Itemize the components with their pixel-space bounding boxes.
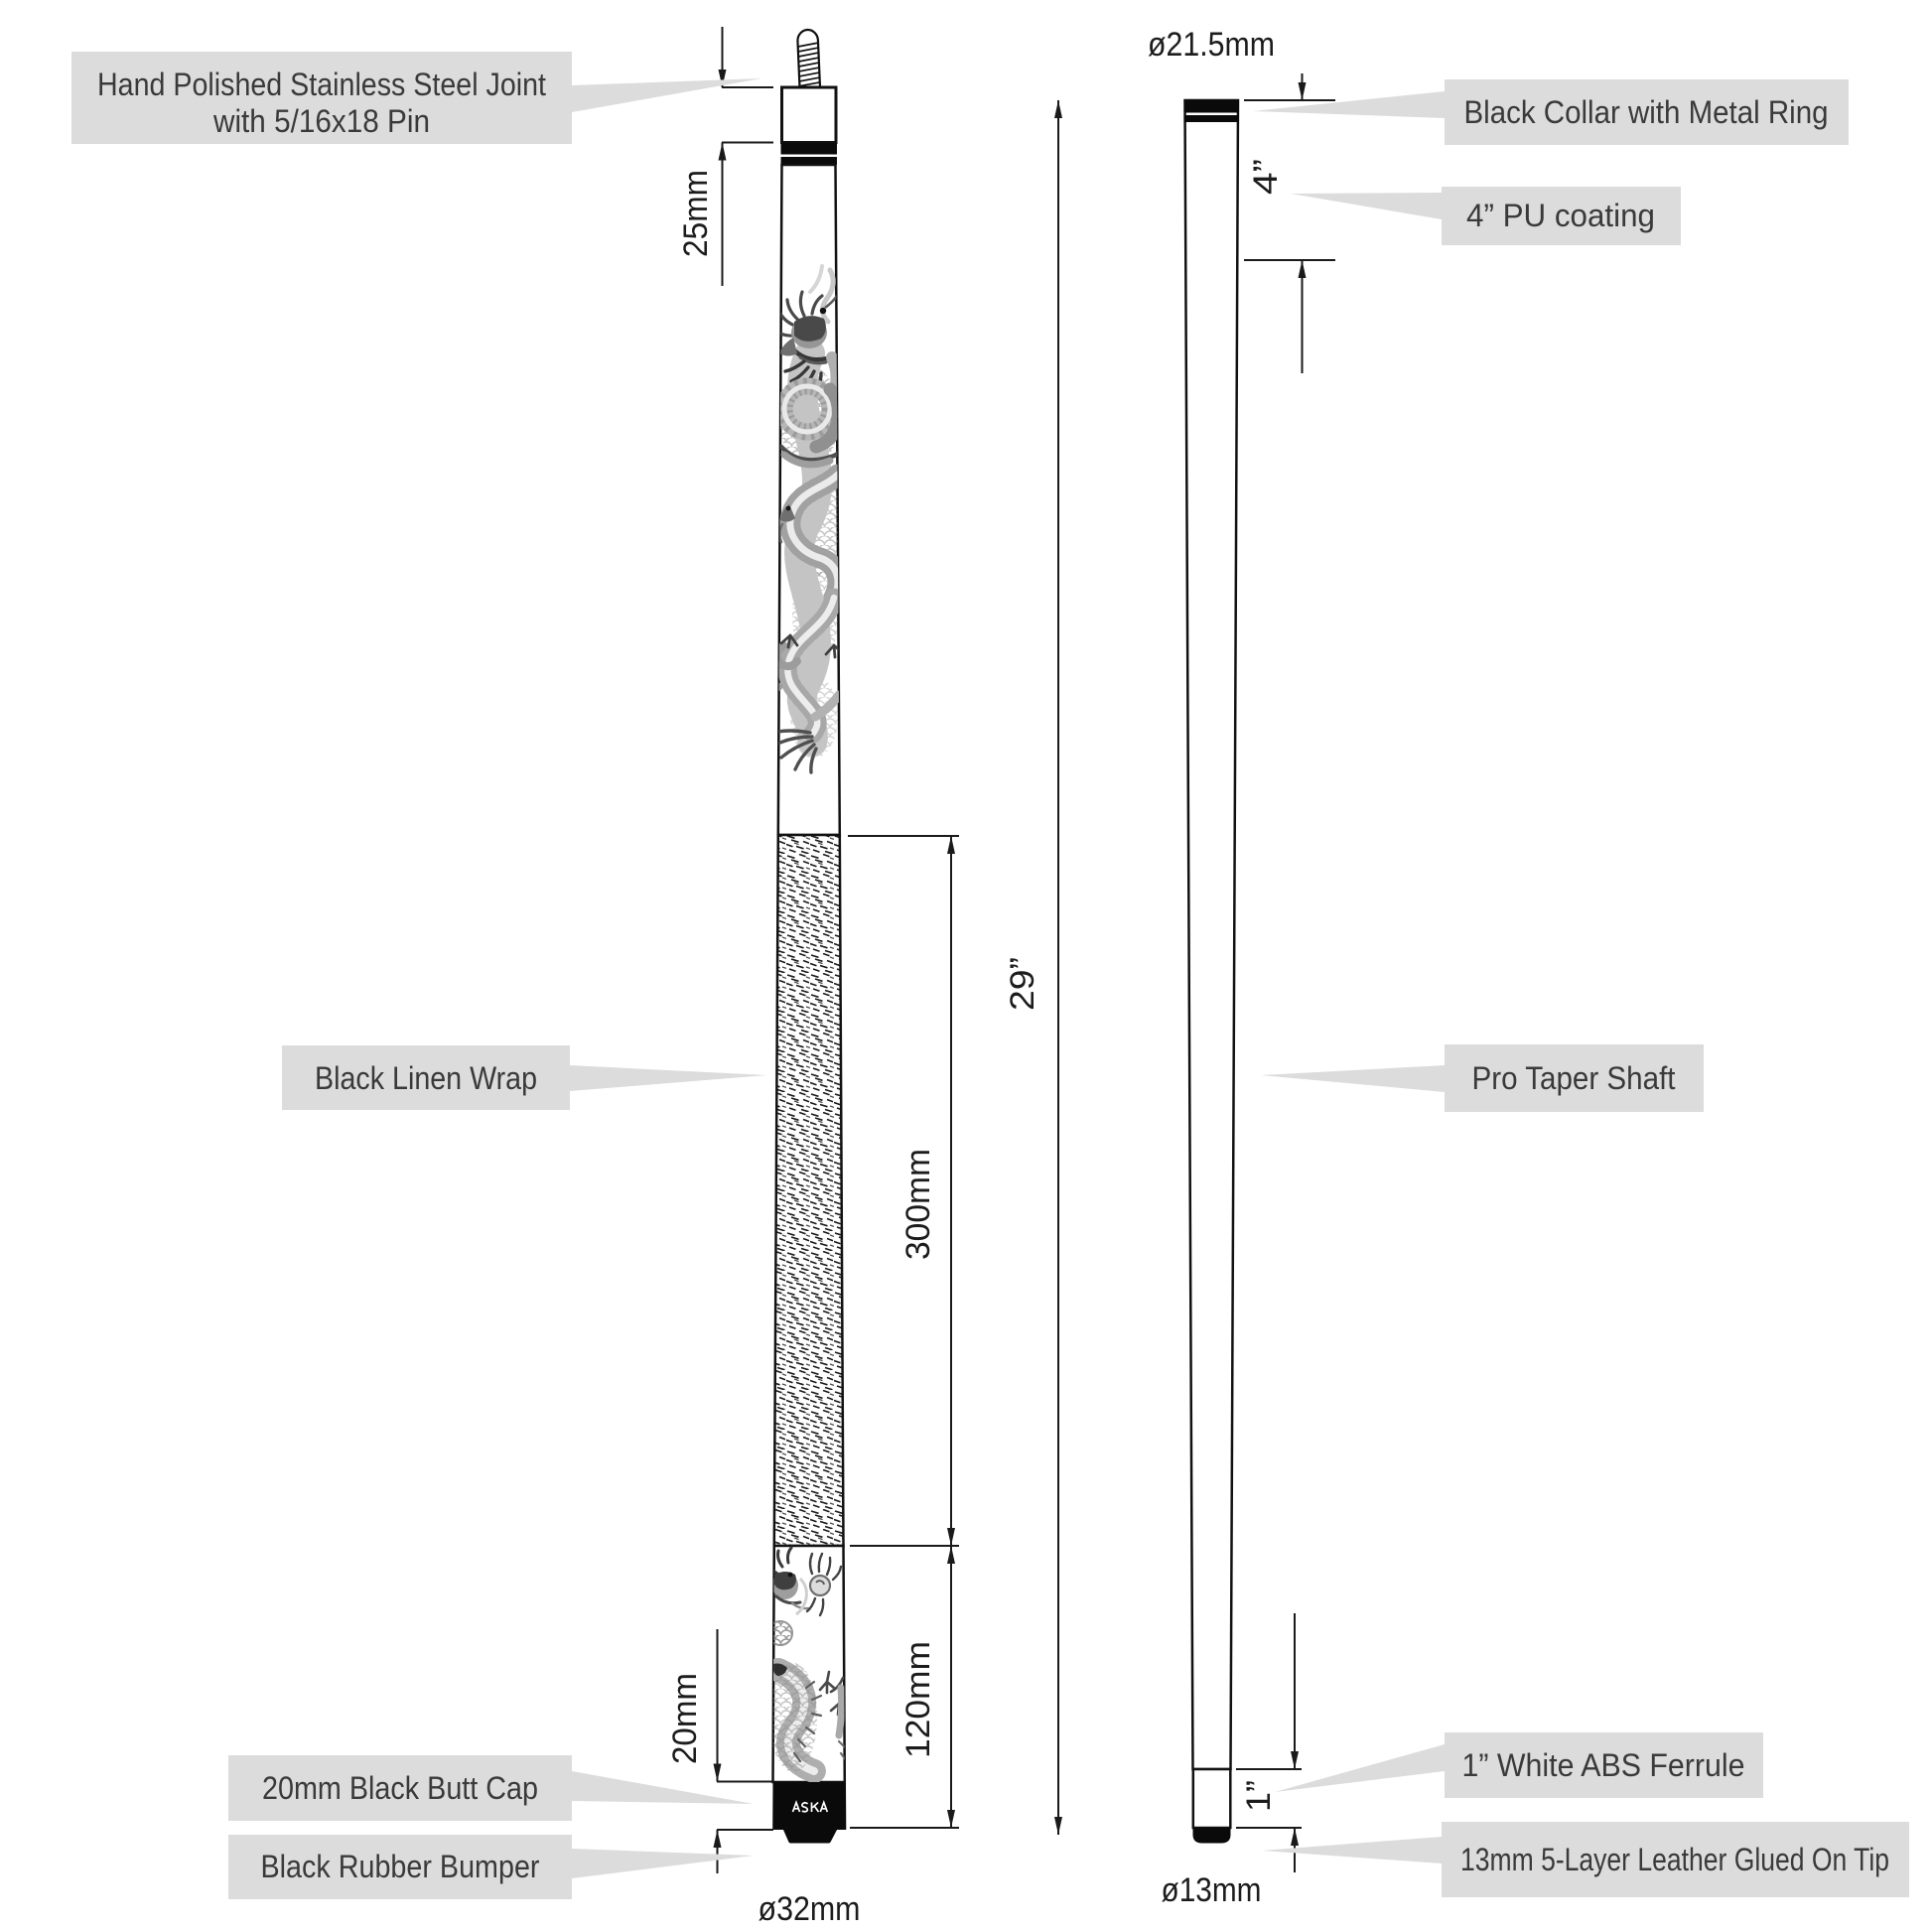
svg-text:4”: 4” [1247,159,1285,195]
svg-text:1”: 1” [1240,1780,1278,1812]
svg-text:with 5/16x18 Pin: with 5/16x18 Pin [212,103,430,139]
svg-text:Hand Polished Stainless Steel: Hand Polished Stainless Steel Joint [97,67,546,102]
svg-text:120mm: 120mm [899,1641,937,1758]
svg-text:ø21.5mm: ø21.5mm [1148,26,1275,64]
svg-text:Black Linen Wrap: Black Linen Wrap [315,1060,537,1096]
svg-text:20mm: 20mm [666,1673,704,1764]
svg-text:20mm Black Butt Cap: 20mm Black Butt Cap [262,1770,538,1806]
svg-text:ø13mm: ø13mm [1162,1871,1262,1909]
svg-text:300mm: 300mm [899,1149,937,1260]
svg-text:Black Collar with Metal Ring: Black Collar with Metal Ring [1464,94,1829,130]
svg-text:Black Rubber Bumper: Black Rubber Bumper [261,1849,540,1884]
svg-text:4” PU coating: 4” PU coating [1466,198,1655,233]
svg-text:Pro Taper Shaft: Pro Taper Shaft [1472,1060,1676,1096]
svg-text:1” White ABS Ferrule: 1” White ABS Ferrule [1462,1747,1745,1783]
svg-text:25mm: 25mm [677,170,715,257]
svg-text:13mm 5-Layer Leather Glued On: 13mm 5-Layer Leather Glued On Tip [1460,1842,1889,1877]
svg-text:ø32mm: ø32mm [759,1890,861,1928]
svg-text:29”: 29” [1004,957,1041,1011]
